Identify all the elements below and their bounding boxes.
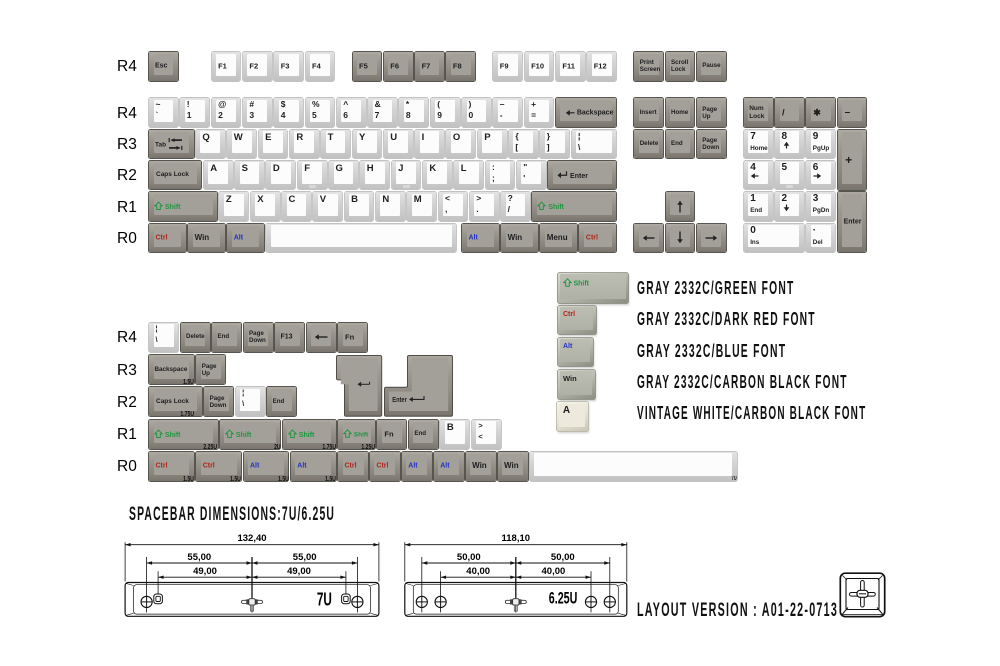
svg-text:50,00: 50,00 bbox=[457, 552, 481, 563]
svg-text:40,00: 40,00 bbox=[466, 566, 490, 577]
svg-text:50,00: 50,00 bbox=[551, 552, 575, 563]
svg-text:40,00: 40,00 bbox=[542, 566, 566, 577]
svg-text:132,40: 132,40 bbox=[237, 533, 266, 544]
svg-text:49,00: 49,00 bbox=[193, 566, 217, 577]
svg-text:55,00: 55,00 bbox=[293, 552, 317, 563]
svg-text:7U: 7U bbox=[317, 589, 332, 610]
svg-text:49,00: 49,00 bbox=[287, 566, 311, 577]
svg-text:6.25U: 6.25U bbox=[549, 590, 578, 608]
svg-text:118,10: 118,10 bbox=[502, 533, 531, 544]
svg-text:55,00: 55,00 bbox=[187, 552, 211, 563]
svg-text:Enter: Enter bbox=[392, 395, 407, 404]
